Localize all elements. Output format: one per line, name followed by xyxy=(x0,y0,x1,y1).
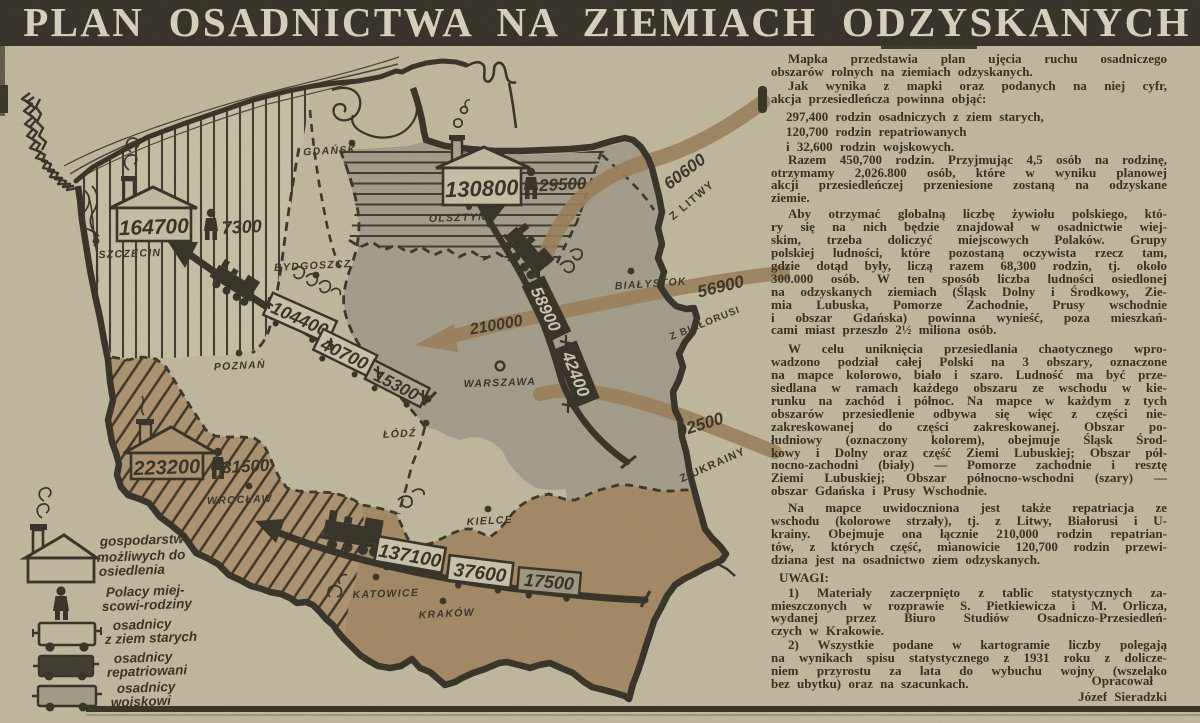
svg-text:WARSZAWA: WARSZAWA xyxy=(464,376,537,391)
svg-text:BYDGOSZCZ: BYDGOSZCZ xyxy=(274,258,352,274)
svg-text:164700: 164700 xyxy=(118,215,189,240)
svg-text:z ziem starych: z ziem starych xyxy=(104,629,198,647)
svg-text:7300: 7300 xyxy=(221,216,262,238)
svg-text:POZNAŃ: POZNAŃ xyxy=(213,358,266,374)
svg-text:29500: 29500 xyxy=(538,174,588,196)
svg-text:WROCŁAW: WROCŁAW xyxy=(207,493,273,507)
svg-text:KIELCE: KIELCE xyxy=(466,514,513,528)
svg-text:223200: 223200 xyxy=(132,456,200,480)
svg-text:osiedlenia: osiedlenia xyxy=(99,562,166,579)
svg-text:repatriowani: repatriowani xyxy=(107,662,188,680)
svg-text:scowi-rodziny: scowi-rodziny xyxy=(102,596,194,614)
svg-text:56900: 56900 xyxy=(695,272,746,302)
svg-text:SZCZECIN: SZCZECIN xyxy=(98,247,161,261)
svg-text:130800: 130800 xyxy=(445,175,520,203)
svg-text:OLSZTYN: OLSZTYN xyxy=(429,211,487,225)
svg-text:KATOWICE: KATOWICE xyxy=(352,587,419,601)
svg-text:31500: 31500 xyxy=(222,456,271,477)
svg-text:ŁÓDŹ: ŁÓDŹ xyxy=(382,426,417,441)
svg-text:gospodarstw: gospodarstw xyxy=(99,531,186,549)
